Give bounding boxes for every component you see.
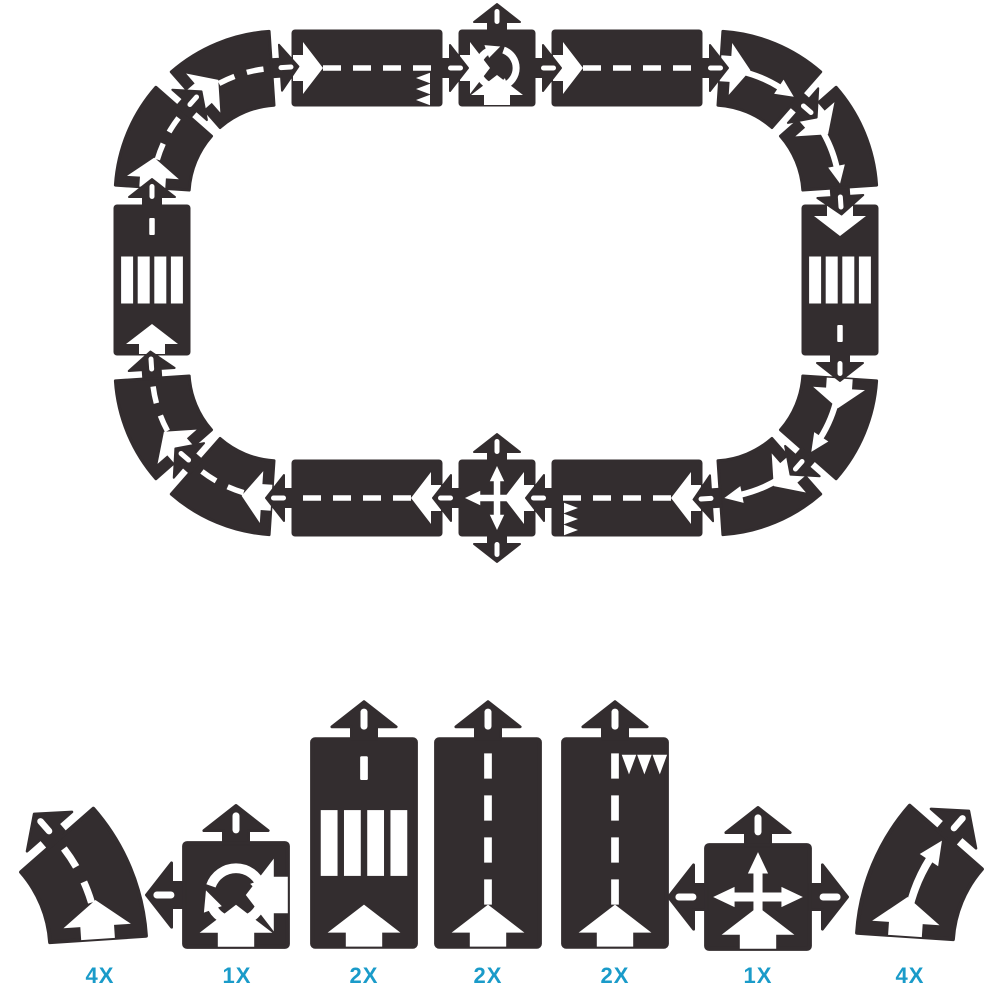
road-piece-crosswalk (115, 206, 189, 354)
road-piece-straight-piece (436, 739, 540, 946)
crosswalk-bar (138, 257, 150, 304)
crosswalk-bar (842, 257, 854, 304)
connector-tab-arrow (456, 702, 520, 740)
crosswalk-bar (826, 257, 838, 304)
crosswalk-bar (859, 257, 871, 304)
connector-tab-arrow (146, 863, 184, 927)
tab-dash-mark (541, 66, 556, 71)
tab-dash-mark (495, 542, 500, 557)
tab-dash-mark (820, 894, 841, 901)
tab-dash-mark (153, 892, 174, 899)
tab-dash-mark (361, 709, 368, 730)
road-piece-roundabout-piece (184, 843, 288, 947)
tab-dash-mark (838, 361, 843, 376)
connector-tab-arrow (810, 865, 848, 929)
crosswalk-bar (171, 257, 183, 304)
tab-dash-mark (495, 439, 500, 454)
parts-count-labels: 4X 1X 2X 2X 2X 1X 4X (86, 963, 925, 988)
road-piece-crosswalk (803, 206, 877, 354)
tab-dash-mark (438, 496, 453, 501)
tab-dash-mark (495, 9, 500, 24)
road-piece-giveway (553, 461, 701, 535)
connector-tab-arrow (474, 4, 520, 31)
tab-dash-mark (150, 184, 155, 199)
tab-dash-mark (448, 66, 463, 71)
road-track-canvas: 4X 1X 2X 2X 2X 1X 4X (0, 0, 1000, 1000)
connector-tab-arrow (474, 434, 520, 461)
connector-tab-arrow (726, 807, 790, 845)
road-piece-crosswalk-piece (312, 739, 416, 946)
crosswalk-bar (809, 257, 821, 304)
road-piece-roundabout (460, 31, 534, 105)
road-piece-give-way-piece (563, 739, 667, 946)
tab-dash-mark (755, 814, 762, 835)
tab-dash-mark (148, 356, 154, 371)
part-count-label: 4X (86, 963, 115, 988)
tab-dash-mark (278, 64, 293, 70)
tab-dash-mark (485, 709, 492, 730)
tab-dash-mark (612, 709, 619, 730)
crosswalk-bar (121, 257, 133, 304)
connector-tab-arrow (474, 535, 520, 562)
part-count-label: 2X (350, 963, 379, 988)
tab-dash-mark (675, 894, 696, 901)
tab-dash-mark (698, 496, 713, 502)
road-piece-giveway (293, 31, 441, 105)
crosswalk-bar (390, 810, 407, 876)
connector-tab-arrow (204, 805, 268, 843)
crosswalk-bar (154, 257, 166, 304)
part-count-label: 2X (601, 963, 630, 988)
road-piece-plain (553, 31, 701, 105)
part-count-label: 1X (744, 963, 773, 988)
road-piece-plain (293, 461, 441, 535)
tab-dash-mark (531, 496, 546, 501)
connector-tab-arrow (668, 865, 706, 929)
crosswalk-bar (344, 810, 361, 876)
tab-dash-mark (233, 812, 240, 833)
part-count-label: 4X (896, 963, 925, 988)
part-count-label: 2X (474, 963, 503, 988)
connector-tab-arrow (583, 702, 647, 740)
tab-dash-mark (271, 496, 286, 501)
road-piece-intersection (460, 461, 534, 535)
tab-dash-mark (708, 66, 723, 71)
road-track-diagram: 4X 1X 2X 2X 2X 1X 4X (0, 0, 1000, 1000)
tab-dash-mark (838, 194, 844, 209)
part-count-label: 1X (223, 963, 252, 988)
crosswalk-bar (367, 810, 384, 876)
road-piece-intersection-piece (706, 845, 810, 949)
crosswalk-bar (321, 810, 338, 876)
connector-tab-arrow (332, 702, 396, 740)
